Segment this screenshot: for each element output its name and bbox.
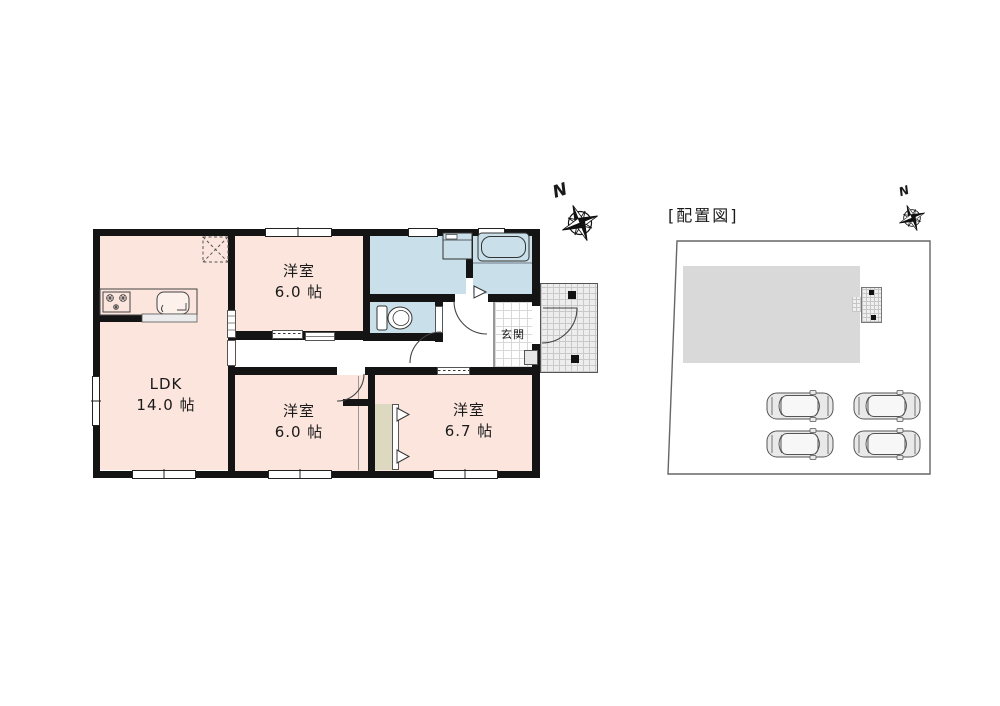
counter-pass (142, 314, 197, 322)
washroom-door-arc (454, 301, 487, 334)
washing-machine-icon (443, 233, 472, 259)
toilet-door-arc (410, 332, 441, 363)
sink-icon (157, 292, 189, 314)
closet-door-triangle (397, 450, 409, 463)
car-icon (854, 429, 920, 460)
bathtub-icon (473, 233, 532, 263)
sliding-door-dashes (273, 334, 469, 371)
entrance-door-arc (542, 308, 577, 343)
closet-door-triangle (397, 408, 409, 421)
bedroom-south-door-arc (337, 374, 364, 401)
compass-icon (555, 198, 604, 247)
pocket-door-hatch (228, 316, 334, 337)
parked-cars (767, 391, 920, 460)
window-ticks (91, 227, 465, 479)
car-icon (767, 429, 833, 460)
ceiling-hatch-icon (203, 237, 228, 262)
plan-details (0, 0, 1000, 706)
kitchen-counter-icon (100, 289, 197, 322)
toilet-icon (377, 306, 412, 330)
compass-icon (894, 200, 930, 236)
door-swing-arcs (337, 301, 577, 401)
car-icon (854, 391, 920, 422)
bath-door-triangle (474, 286, 486, 298)
car-icon (767, 391, 833, 422)
page-canvas: LDK 14.0 帖 洋室 6.0 帖 洋室 6.0 帖 洋室 6.7 帖 玄関… (0, 0, 1000, 706)
site-plan-title: [配置図] (668, 202, 739, 226)
